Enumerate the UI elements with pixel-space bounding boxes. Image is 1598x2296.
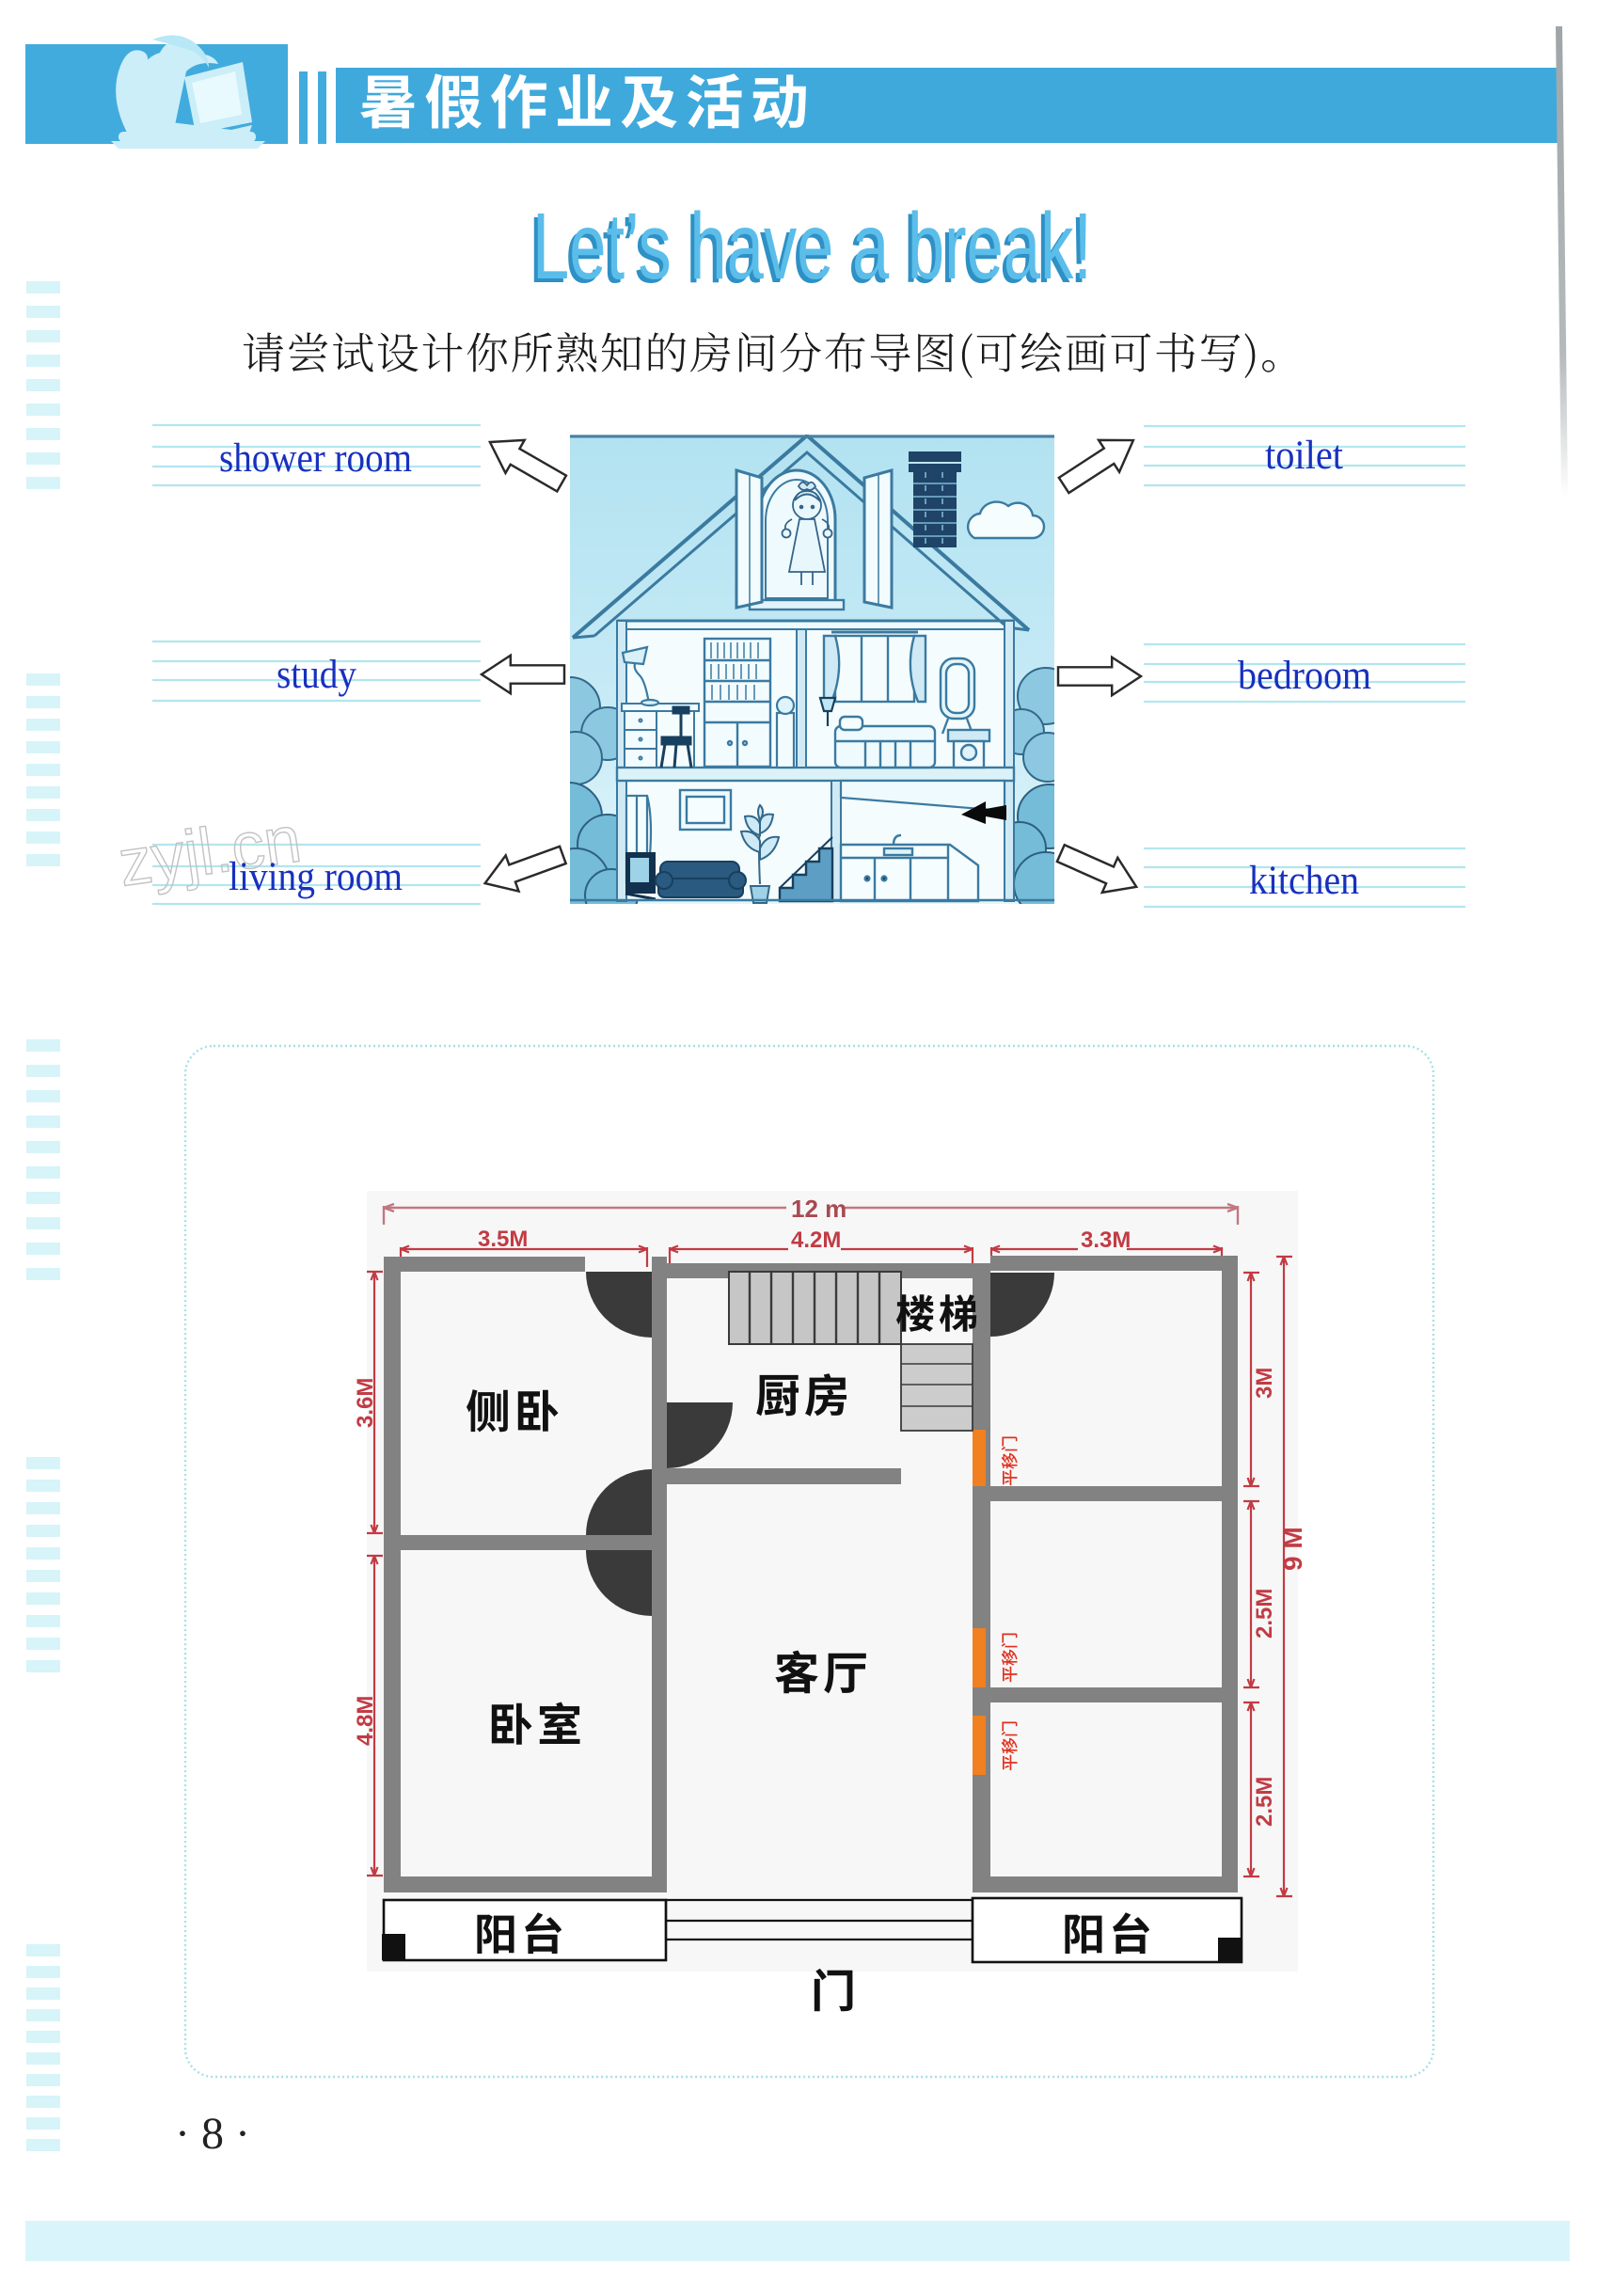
svg-text:study: study <box>277 653 356 697</box>
svg-text:3M: 3M <box>1252 1368 1277 1399</box>
svg-text:living room: living room <box>229 855 403 899</box>
svg-text:9 M: 9 M <box>1278 1527 1307 1571</box>
svg-text:12 m: 12 m <box>791 1195 846 1223</box>
svg-text:4.2M: 4.2M <box>791 1227 841 1253</box>
svg-text:Let’s have a break!: Let’s have a break! <box>532 194 1092 299</box>
svg-text:3.6M: 3.6M <box>353 1378 378 1428</box>
svg-text:2.5M: 2.5M <box>1252 1589 1277 1639</box>
svg-text:kitchen: kitchen <box>1249 859 1359 903</box>
svg-text:3.5M: 3.5M <box>478 1227 528 1252</box>
svg-text:bedroom: bedroom <box>1238 654 1371 698</box>
svg-text:toilet: toilet <box>1265 434 1343 478</box>
svg-text:3.3M: 3.3M <box>1081 1227 1131 1253</box>
svg-text:· 8 ·: · 8 · <box>175 2109 250 2159</box>
svg-text:2.5M: 2.5M <box>1252 1777 1277 1827</box>
svg-text:4.8M: 4.8M <box>353 1696 378 1746</box>
svg-text:shower room: shower room <box>219 436 412 481</box>
